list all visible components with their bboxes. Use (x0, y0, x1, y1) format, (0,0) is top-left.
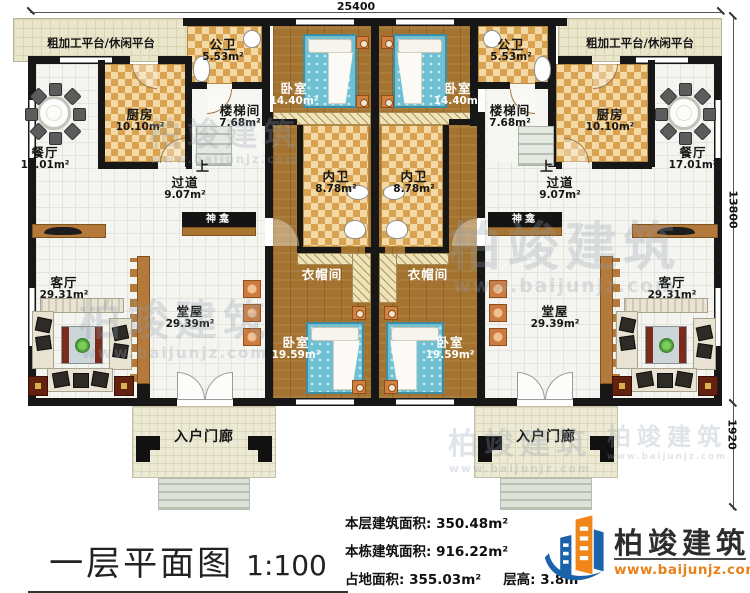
shrine-base (488, 227, 562, 236)
sofa-group-right (616, 296, 716, 398)
room-label-inner-bath-left: 内卫8.78m² (305, 170, 367, 195)
room-label-kitchen-right: 厨房10.10m² (575, 108, 645, 133)
title-scale: 1:100 (246, 549, 327, 582)
wall (137, 384, 150, 398)
wall (297, 125, 303, 247)
drawing-title: 一层平面图1:100 (28, 536, 348, 593)
room-label-bedroom-bottom-left: 卧室19.59m² (256, 336, 336, 361)
room-label-stairwell-left: 楼梯间7.68m² (200, 104, 280, 129)
room-label-public-bath-right: 公卫5.53m² (481, 38, 541, 63)
wall (187, 82, 207, 89)
room-label-platform-left: 粗加工平台/休闲平台 (21, 33, 181, 51)
room-label-cloakroom-right: 衣帽间 (388, 268, 468, 282)
wall (297, 247, 341, 253)
room-label-hall-right: 堂屋29.39m² (515, 305, 595, 330)
room-label-living-right: 客厅29.31m² (632, 276, 712, 301)
brand-website: www.baijunjz.com (614, 558, 746, 578)
room-label-public-bath-left: 公卫5.53m² (193, 38, 253, 63)
room-label-inner-bath-right: 内卫8.78m² (383, 170, 445, 195)
dining-set-left (24, 83, 84, 143)
nightstand (384, 306, 398, 320)
room-label-corridor-left: 过道9.07m² (150, 176, 220, 201)
room-label-kitchen-left: 厨房10.10m² (105, 108, 175, 133)
wall (98, 162, 158, 169)
wall (265, 246, 273, 398)
dimension-width: 25400 (316, 0, 396, 13)
room-label-dining-right: 餐厅17.01m² (662, 146, 724, 171)
room-label-porch-right: 入户门廊 (486, 430, 606, 445)
porch-steps-left (158, 478, 250, 510)
room-label-platform-right: 粗加工平台/休闲平台 (560, 33, 720, 51)
nightstand (352, 306, 366, 320)
dimension-height-porch: 1920 (726, 405, 739, 465)
room-label-hall-left: 堂屋29.39m² (150, 305, 230, 330)
porch-steps-right (500, 478, 592, 510)
display-partition (600, 256, 613, 384)
wall (405, 247, 449, 253)
room-label-living-left: 客厅29.31m² (24, 276, 104, 301)
window (636, 57, 688, 63)
wall (556, 162, 562, 169)
toilet-icon (386, 220, 408, 239)
shrine-left: 神龛 (182, 212, 256, 227)
wall (592, 162, 652, 169)
shrine-right: 神龛 (488, 212, 562, 227)
wall (477, 246, 485, 398)
wall (186, 162, 192, 169)
wall (535, 82, 555, 89)
brand-logo-icon (542, 512, 612, 586)
wall (185, 60, 192, 167)
room-label-bedroom-bottom-right: 卧室19.59m² (410, 336, 490, 361)
shrine-base (182, 227, 256, 236)
brand-name: 柏竣建筑 (614, 520, 750, 562)
nightstand (381, 36, 394, 49)
room-label-porch-left: 入户门廊 (144, 430, 264, 445)
dimension-height-main: 13800 (727, 175, 740, 245)
wall (379, 247, 385, 253)
wall (558, 56, 592, 64)
wall (365, 247, 371, 253)
nightstand (356, 95, 369, 108)
tv-icon (657, 227, 695, 235)
window (396, 399, 454, 405)
wall (98, 60, 105, 167)
dimension-tick (27, 7, 35, 15)
room-label-stairwell-right: 楼梯间7.68m² (470, 104, 550, 129)
wall (28, 398, 177, 406)
dimension-tick (717, 7, 725, 15)
tv-icon (44, 227, 82, 235)
display-partition (137, 256, 150, 384)
nightstand (384, 380, 398, 394)
sofa-group-left (32, 296, 132, 398)
nightstand (381, 95, 394, 108)
window (296, 19, 354, 25)
stairs-up-label-right: 上 (540, 156, 553, 175)
wall (371, 18, 379, 406)
room-label-dining-left: 餐厅17.01m² (14, 146, 76, 171)
title-text: 一层平面图 (49, 544, 234, 584)
stat-floor-height: 层高: (503, 572, 535, 588)
room-label-cloakroom-left: 衣帽间 (282, 268, 362, 282)
window (296, 399, 354, 405)
wall (573, 398, 722, 406)
floor-plan-page: 25400 13800 1920 粗加工平台/休闲平台 粗加工平台/休闲平台 (0, 0, 750, 593)
brand-logo: 柏竣建筑 www.baijunjz.com (542, 512, 748, 590)
window (396, 19, 454, 25)
nightstand (352, 380, 366, 394)
dining-set-right (654, 83, 714, 143)
room-label-corridor-right: 过道9.07m² (525, 176, 595, 201)
nightstand (356, 36, 369, 49)
stairs-up-label-left: 上 (196, 156, 209, 175)
toilet-icon (344, 220, 366, 239)
